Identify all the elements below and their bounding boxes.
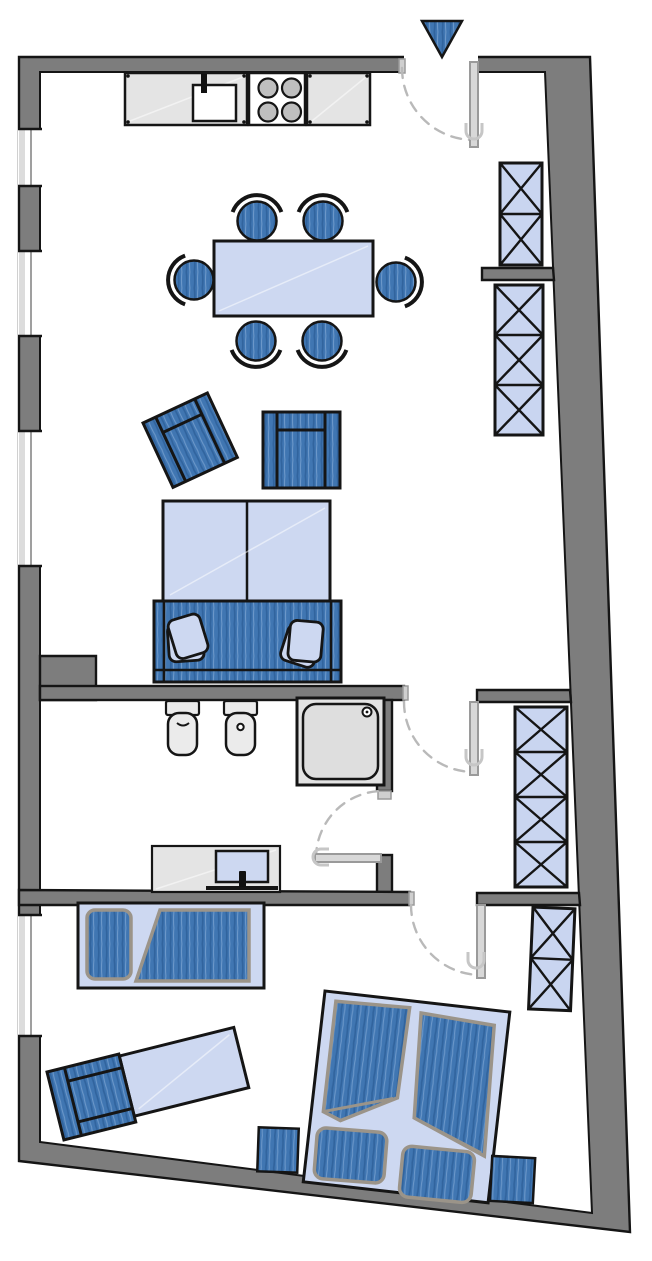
stool-2 <box>490 1156 535 1203</box>
single-bed <box>78 903 264 988</box>
sofa-bed <box>154 501 341 682</box>
bidet <box>224 701 257 755</box>
wall-hall-bottom <box>477 893 580 905</box>
burner-icon <box>259 103 278 122</box>
wall-cap <box>409 892 414 905</box>
bath-wall-cap <box>378 791 391 799</box>
floor-plan-svg <box>0 0 652 1261</box>
kitchen-sink <box>193 85 236 121</box>
window-3 <box>18 431 42 566</box>
burner-icon <box>282 103 301 122</box>
entry-door-leaf <box>470 62 478 147</box>
shower <box>297 698 384 785</box>
stool-1 <box>257 1127 299 1172</box>
wardrobe-2 <box>495 285 543 435</box>
kitchen-counter-sink <box>125 73 247 125</box>
vanity-sink <box>152 846 280 892</box>
burner-icon <box>259 79 278 98</box>
bathroom-door-leaf <box>315 854 381 862</box>
armchair-2 <box>263 412 340 488</box>
pillow <box>87 910 131 979</box>
double-bed <box>303 991 510 1206</box>
stove <box>249 73 305 125</box>
kitchen <box>125 73 370 125</box>
wardrobe-3 <box>515 707 567 887</box>
window-1 <box>18 129 42 186</box>
wardrobe-4 <box>529 907 575 1011</box>
kitchen-counter <box>307 73 370 125</box>
burner-icon <box>282 79 301 98</box>
entrance-arrow-icon <box>422 21 462 57</box>
pillow <box>314 1127 388 1183</box>
wall-stub-wardrobes <box>482 268 554 280</box>
toilet <box>166 701 199 755</box>
pillow <box>399 1146 476 1204</box>
wall-hall-top <box>477 690 571 702</box>
window-4 <box>18 915 42 1036</box>
wall-cap <box>403 686 408 700</box>
floor-plan <box>0 0 652 1261</box>
vanity-faucet-icon <box>239 871 246 887</box>
kitchen-faucet-icon <box>201 74 207 93</box>
dining-table <box>214 241 373 316</box>
window-2 <box>18 251 42 336</box>
wardrobe-1 <box>500 163 542 265</box>
